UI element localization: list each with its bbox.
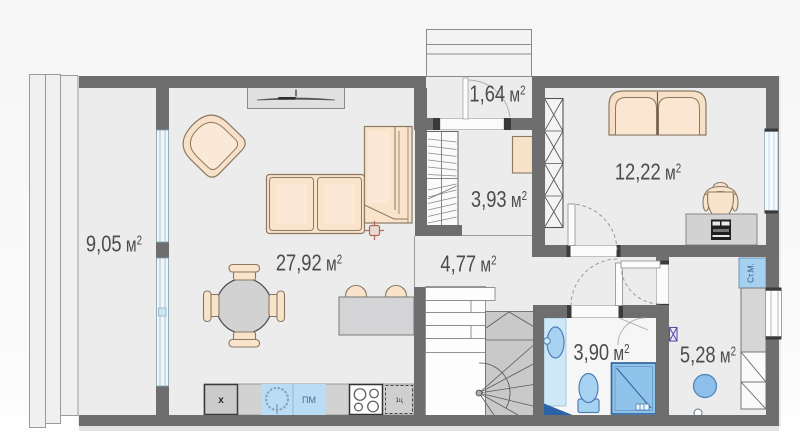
svg-text:3,93 м2: 3,93 м2 bbox=[471, 187, 527, 213]
svg-text:x: x bbox=[218, 395, 224, 406]
svg-text:9,05 м2: 9,05 м2 bbox=[86, 231, 142, 257]
svg-text:3,90 м2: 3,90 м2 bbox=[573, 340, 629, 366]
svg-text:1ц: 1ц bbox=[395, 397, 403, 404]
svg-text:Ст.М.: Ст.М. bbox=[747, 263, 756, 283]
svg-text:27,92 м2: 27,92 м2 bbox=[276, 250, 342, 276]
svg-text:4,77 м2: 4,77 м2 bbox=[440, 251, 496, 277]
svg-text:12,22 м2: 12,22 м2 bbox=[615, 159, 681, 185]
svg-text:5,28 м2: 5,28 м2 bbox=[680, 342, 736, 368]
svg-text:1,64 м2: 1,64 м2 bbox=[469, 81, 525, 107]
svg-text:ПМ: ПМ bbox=[302, 395, 316, 405]
